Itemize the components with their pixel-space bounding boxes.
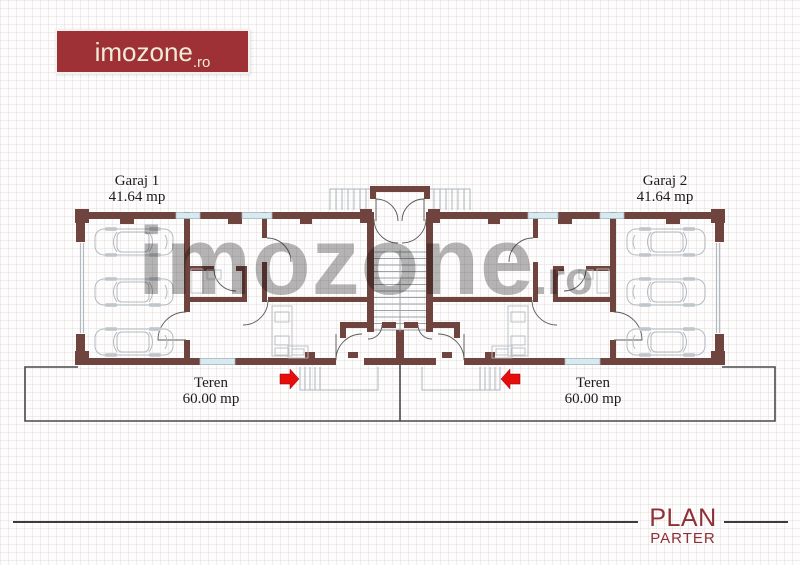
- label-plot-right-name: Teren: [576, 375, 610, 391]
- floor-plan-drawing: [0, 0, 800, 565]
- plan-subtitle: PARTER: [646, 531, 720, 546]
- label-plot-left-area: 60.00 mp: [183, 392, 240, 407]
- label-garage-left-area: 41.64 mp: [109, 190, 166, 205]
- label-garage-right-name: Garaj 2: [643, 173, 688, 189]
- title-rule-right: [724, 521, 788, 523]
- label-plot-right-area: 60.00 mp: [565, 392, 622, 407]
- floorplan-page: imozone.ro: [0, 0, 800, 565]
- title-rule-left: [13, 521, 638, 523]
- label-plot-right: Teren 60.00 mp: [565, 376, 622, 407]
- label-garage-left-name: Garaj 1: [115, 173, 160, 189]
- label-garage-right: Garaj 2 41.64 mp: [637, 174, 694, 205]
- label-garage-right-area: 41.64 mp: [637, 190, 694, 205]
- label-plot-left: Teren 60.00 mp: [183, 376, 240, 407]
- title-block: PLAN PARTER: [646, 506, 720, 546]
- label-garage-left: Garaj 1 41.64 mp: [109, 174, 166, 205]
- label-plot-left-name: Teren: [194, 375, 228, 391]
- plan-title: PLAN: [646, 506, 720, 531]
